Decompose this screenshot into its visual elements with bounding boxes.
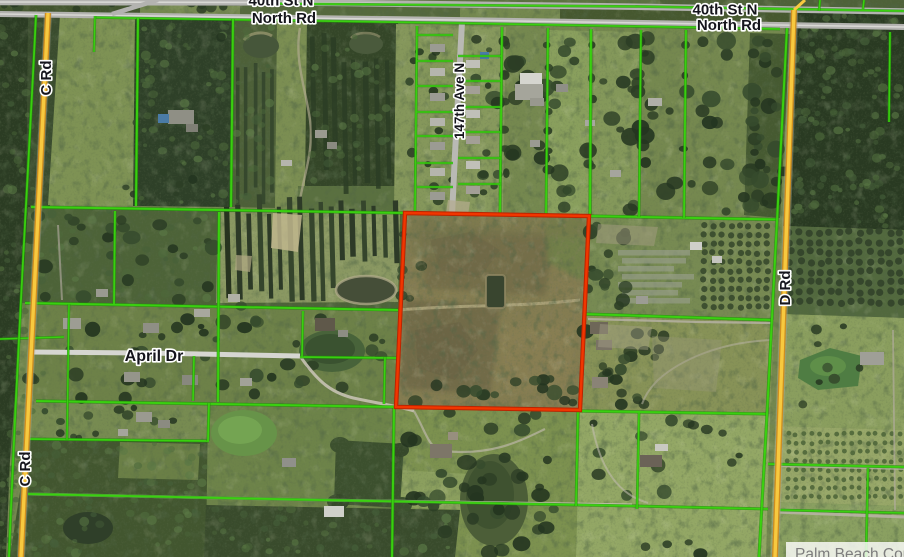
svg-text:D Rd: D Rd bbox=[777, 271, 794, 306]
svg-text:Palm Beach Cou: Palm Beach Cou bbox=[795, 546, 904, 557]
svg-text:40th St N: 40th St N bbox=[692, 2, 757, 19]
svg-text:North Rd: North Rd bbox=[697, 17, 761, 34]
svg-text:North Rd: North Rd bbox=[252, 10, 316, 27]
svg-text:C Rd: C Rd bbox=[17, 452, 34, 487]
svg-text:40th St N: 40th St N bbox=[248, 0, 313, 10]
svg-text:April Dr: April Dr bbox=[125, 348, 184, 365]
svg-text:147th Ave N: 147th Ave N bbox=[452, 63, 467, 139]
svg-text:C Rd: C Rd bbox=[38, 61, 55, 96]
